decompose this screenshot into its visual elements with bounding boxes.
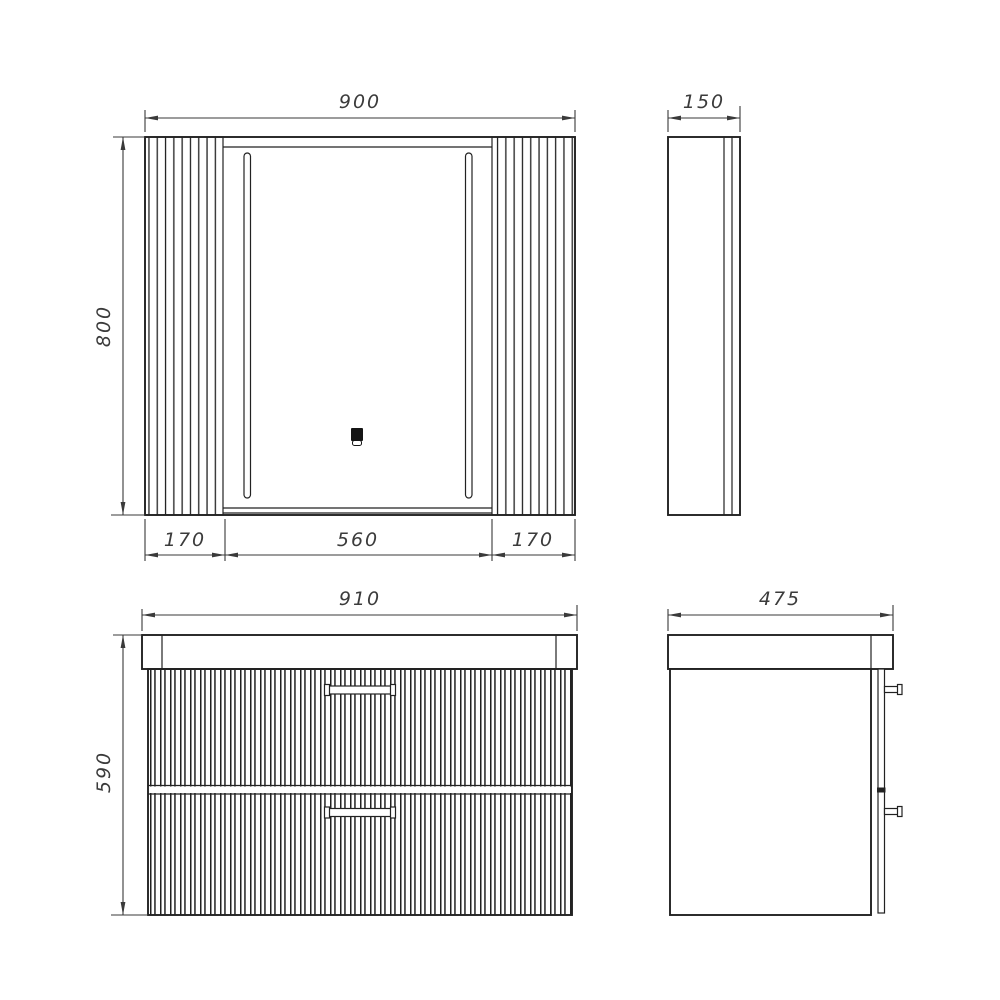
dim-label-vanity-width: 910: [339, 588, 381, 610]
drawer-divider: [148, 786, 572, 795]
led-strip-icon-left: [244, 153, 251, 498]
fluted-panel-left: [145, 137, 223, 515]
touch-sensor-icon: [351, 428, 363, 446]
vanity-front-view: [142, 635, 577, 915]
dim-label-mirror-width: 900: [339, 91, 381, 113]
technical-drawing-page: 900 800 170 560 170: [0, 0, 1000, 1000]
drawer-gap-mark: [877, 788, 886, 793]
handle-pin-bottom: [885, 807, 903, 817]
vanity-body-side: [670, 669, 871, 915]
dim-label-mirror-height: 800: [93, 305, 115, 347]
dim-label-mirror-right-panel: 170: [512, 529, 554, 551]
dim-label-mirror-left-panel: 170: [164, 529, 206, 551]
mirror-side-view: [668, 137, 740, 515]
dim-label-vanity-depth: 475: [759, 588, 801, 610]
mirror-front-view: [145, 137, 575, 515]
mirror-side-outline: [668, 137, 740, 515]
dim-label-mirror-door: 560: [337, 529, 379, 551]
dim-label-mirror-depth: 150: [683, 91, 725, 113]
drawer-handle-top: [325, 685, 396, 696]
handle-pin-top: [885, 685, 903, 695]
dim-label-vanity-height: 590: [93, 751, 115, 793]
countertop: [142, 635, 577, 669]
bathroom-furniture-drawing: 900 800 170 560 170: [0, 0, 1000, 1000]
fluted-panel-right: [492, 137, 575, 515]
countertop-side: [668, 635, 893, 669]
vanity-side-view: [668, 635, 902, 915]
led-strip-icon-right: [466, 153, 473, 498]
drawer-handle-bottom: [325, 807, 396, 818]
